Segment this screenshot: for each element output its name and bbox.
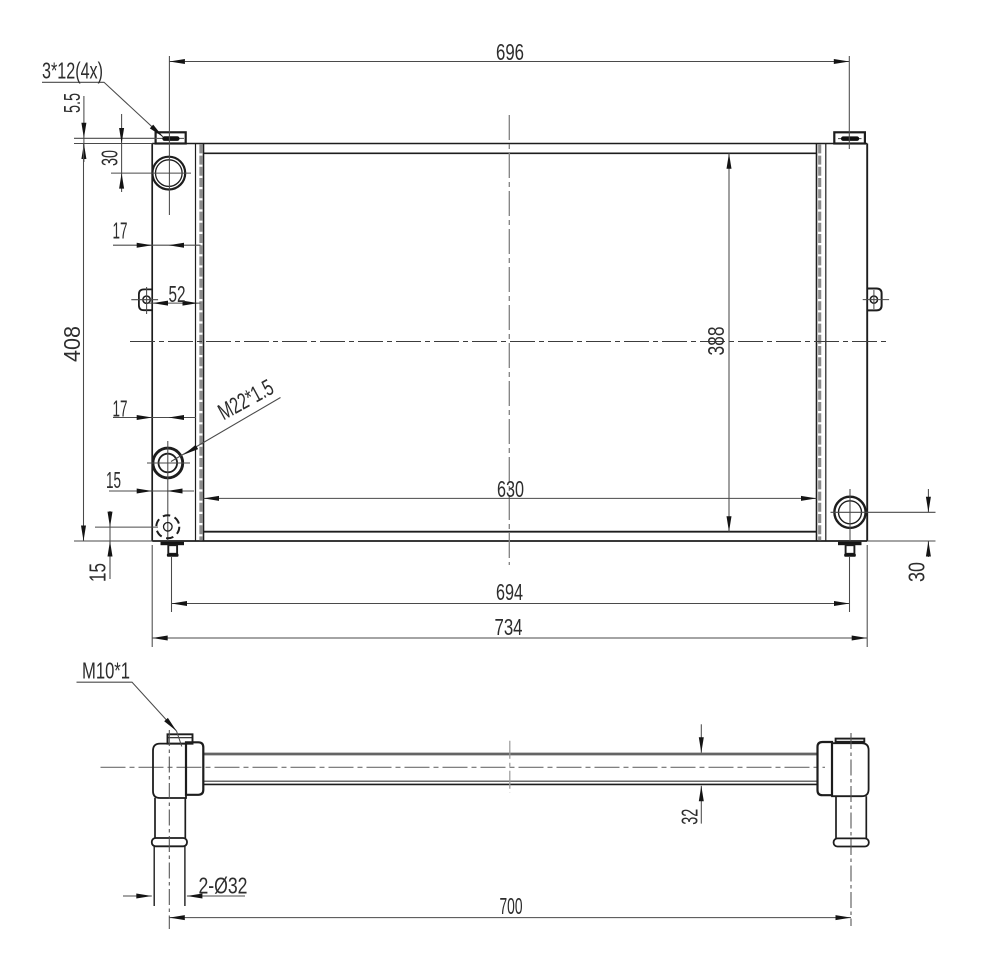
svg-text:3*12(4x): 3*12(4x) (42, 58, 103, 84)
svg-text:17: 17 (113, 396, 128, 422)
svg-text:5.5: 5.5 (59, 93, 85, 113)
svg-text:17: 17 (113, 218, 128, 244)
svg-text:630: 630 (497, 476, 524, 502)
svg-text:30: 30 (904, 562, 930, 582)
svg-text:52: 52 (169, 281, 186, 307)
svg-text:696: 696 (496, 39, 524, 65)
svg-text:734: 734 (495, 614, 523, 640)
svg-text:30: 30 (97, 150, 123, 166)
svg-text:32: 32 (677, 809, 703, 825)
svg-text:694: 694 (496, 579, 523, 605)
svg-text:388: 388 (703, 327, 729, 356)
svg-text:2-Ø32: 2-Ø32 (199, 873, 248, 899)
svg-text:M10*1: M10*1 (82, 658, 130, 684)
svg-text:15: 15 (85, 563, 111, 582)
svg-text:408: 408 (59, 326, 85, 362)
svg-text:15: 15 (106, 467, 121, 493)
svg-text:700: 700 (500, 893, 523, 919)
